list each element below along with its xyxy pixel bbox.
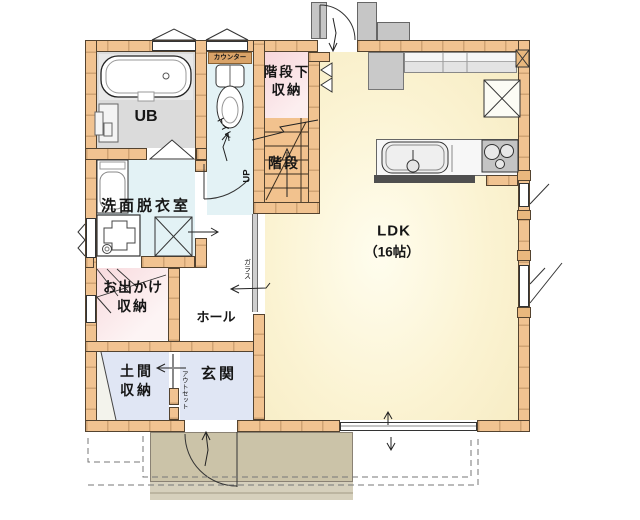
outset-door-label: アウトセット [180,371,187,410]
ldk-size-label: （16帖） [364,245,420,259]
counter-label: カウンター [214,55,247,62]
glass-label: ガラス [244,259,251,280]
window-left-washroom [86,218,96,258]
hall-label: ホール [196,311,235,324]
glass-partition [252,214,258,312]
wall-entrance-right [253,314,265,420]
wall-post-4 [517,307,531,318]
kitchen-back-cabinets-top [405,53,516,62]
wall-top-right [357,40,530,52]
ldk-label: LDK [377,224,411,239]
outing-storage-label-1: お出かけ [103,280,163,294]
wall-bottom-1 [85,420,185,432]
floor-plan: UB カウンター トイレ 階段下 収納 階段 UP 洗面脱衣室 お出かけ 収納 … [0,0,640,520]
window-right-kitchen [519,183,529,207]
room-ub-bath-zone [99,54,193,100]
outing-storage-label-2: 収納 [117,299,149,313]
wall-post-3 [517,250,531,261]
wall-bottom-3 [477,420,530,432]
window-right-ldk [519,265,529,307]
doma-storage-label-2: 収納 [120,383,154,397]
wall-washroom-bottom-right [141,256,195,268]
understair-storage-label-1: 階段下 [264,65,311,79]
right-window-ticks [530,184,562,303]
kitchen-counter-wall-stub [486,175,518,186]
kitchen-counter [376,139,518,176]
wall-right [518,40,530,432]
washroom-label: 洗面脱衣室 [101,199,191,214]
back-door-jamb-left [311,2,327,39]
wall-washroom-right-top [195,160,207,172]
wall-back-door-stub [308,52,330,62]
stairs-up-label: UP [242,169,252,182]
refrigerator [368,52,404,90]
wall-post-2 [517,210,531,220]
wall-outing-right [168,268,180,342]
entrance-porch-step [150,481,353,500]
wall-hall-step [85,341,265,352]
wall-washroom-right-bottom [195,238,207,268]
window-left-outing [86,295,96,323]
wall-bottom-2 [237,420,340,432]
wall-stairs-bottom [253,202,320,214]
ub-label: UB [134,109,157,125]
wall-post-1 [517,170,531,181]
doma-storage-label-1: 土間 [120,364,154,378]
wall-doma-divider-2 [169,407,179,420]
understair-storage-label-2: 収納 [272,83,303,97]
window-bottom-ldk [340,422,477,431]
wall-ub-right [195,40,207,160]
wall-doma-divider-1 [169,388,179,405]
window-top-ub [152,41,196,51]
wall-ub-bottom-right [196,148,207,160]
wall-ub-bottom-left [85,148,147,160]
kitchen-counter-front-panel [374,175,475,183]
stairs-label: 階段 [268,156,300,170]
back-door-jamb-right [357,2,377,45]
vent-triangle-icons [152,29,248,40]
entrance-label: 玄関 [201,367,237,382]
room-entrance [180,352,253,420]
window-top-toilet [206,41,248,51]
